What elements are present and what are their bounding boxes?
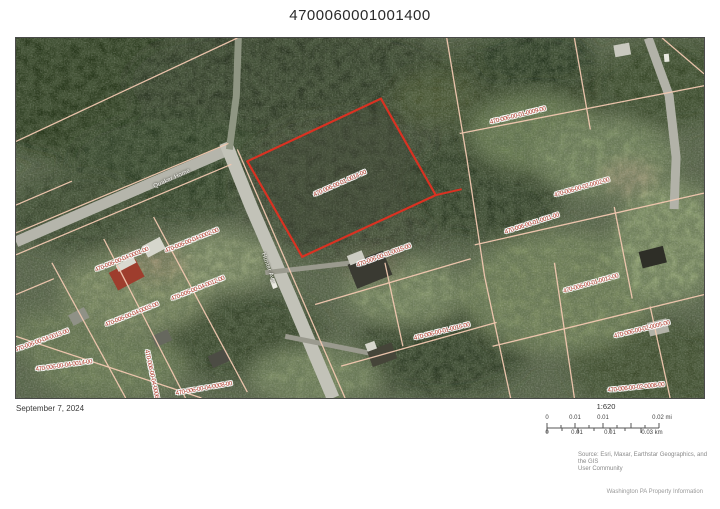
footer-attribution: Washington PA Property Information: [607, 489, 703, 495]
scalebar-ticks: [540, 422, 715, 434]
page-title: 4700060001001400: [0, 7, 720, 24]
scale-mi-1: 0.01: [569, 415, 581, 421]
map-viewport[interactable]: 470-006-00-01-0014-00470-006-00-01-0009-…: [15, 37, 705, 399]
scale-ratio: 1:620: [597, 402, 616, 411]
scale-mi-3: 0.02 mi: [652, 415, 672, 421]
attribution-line-2: User Community: [578, 466, 710, 473]
scale-km-3: 0.03 km: [641, 430, 662, 436]
scale-mi-2: 0.01: [597, 415, 609, 421]
scale-km-1: 0.01: [571, 430, 583, 436]
date-label: September 7, 2024: [16, 404, 84, 413]
attribution-line-1: Source: Esri, Maxar, Earthstar Geographi…: [578, 452, 710, 466]
scale-km-2: 0.01: [604, 430, 616, 436]
scale-km-0: 0: [545, 430, 548, 436]
map-art: [16, 38, 704, 398]
map-attribution: Source: Esri, Maxar, Earthstar Geographi…: [578, 452, 710, 473]
scalebar: 1:620 0 0.01 0.01 0.02 mi 0 0.01: [540, 399, 715, 441]
scale-mi-0: 0: [545, 415, 548, 421]
page-root: 4700060001001400: [0, 0, 720, 509]
